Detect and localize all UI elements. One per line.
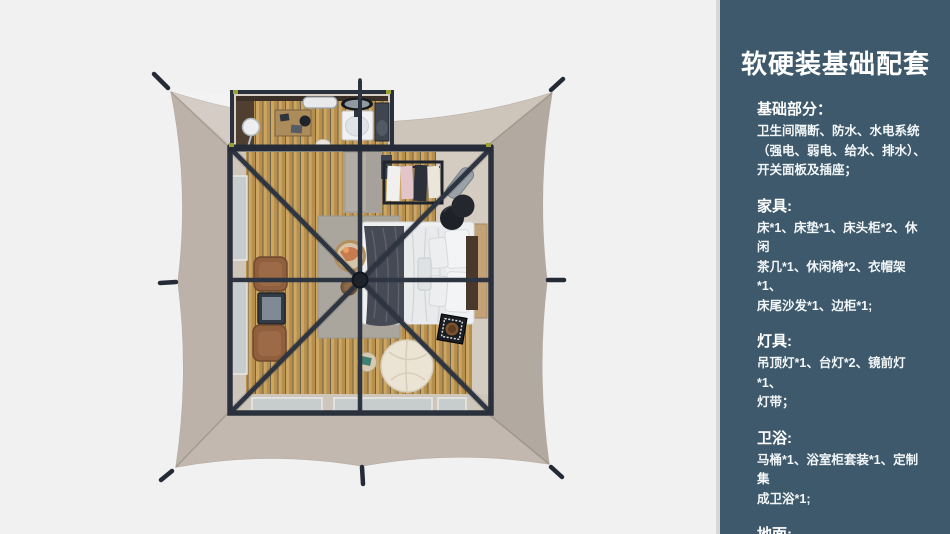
bed — [362, 222, 478, 326]
section-heading: 地面: — [757, 526, 936, 534]
tent-topview-render — [0, 0, 720, 534]
section-basics: 基础部分： 卫生间隔断、防水、水电系统 （强电、弱电、给水、排水）、 开关面板及… — [757, 101, 936, 181]
section-lighting: 灯具: 吊顶灯*1、台灯*2、镜前灯*1、 灯带； — [757, 333, 936, 413]
bathroom-sink — [342, 110, 373, 140]
tray-table — [437, 314, 467, 344]
section-body: 床*1、床垫*1、床头柜*2、休闲 茶几*1、休闲椅*2、衣帽架*1、 床尾沙发… — [757, 219, 929, 317]
section-body: 卫生间隔断、防水、水电系统 （强电、弱电、给水、排水）、 开关面板及插座； — [757, 122, 929, 181]
slide: 软硬装基础配套 基础部分： 卫生间隔断、防水、水电系统 （强电、弱电、给水、排水… — [0, 0, 950, 534]
stake-top-right — [551, 79, 563, 90]
light-panel — [303, 97, 337, 108]
window-left-lower — [232, 282, 247, 374]
vanity-desk — [275, 110, 311, 136]
section-body: 马桶*1、浴室柜套装*1、定制集 成卫浴*1; — [757, 451, 929, 510]
stake-top-left — [154, 74, 168, 88]
info-panel: 软硬装基础配套 基础部分： 卫生间隔断、防水、水电系统 （强电、弱电、给水、排水… — [720, 0, 950, 534]
lounge-chair-upper — [254, 257, 287, 291]
stake-bottom-right — [551, 467, 562, 477]
section-heading: 基础部分： — [757, 101, 936, 118]
lounge-chair-lower — [253, 325, 286, 361]
section-heading: 家具: — [757, 198, 936, 215]
panel-title: 软硬装基础配套 — [741, 49, 936, 79]
tea-table — [258, 293, 285, 324]
section-furniture: 家具: 床*1、床垫*1、床头柜*2、休闲 茶几*1、休闲椅*2、衣帽架*1、 … — [757, 198, 936, 317]
stake-left-mid — [160, 282, 176, 283]
tent-floorplan-svg — [0, 0, 720, 534]
section-bathroom: 卫浴: 马桶*1、浴室柜套装*1、定制集 成卫浴*1; — [757, 430, 936, 510]
window-left-upper — [232, 176, 247, 260]
section-heading: 灯具: — [757, 333, 936, 350]
stake-bottom-left — [161, 471, 172, 480]
window-bottom-left — [252, 398, 322, 411]
section-heading: 卫浴: — [757, 430, 936, 447]
stake-bottom-center — [362, 467, 363, 484]
bed-headboard — [466, 236, 478, 310]
section-flooring: 地面: 强化木地板、卫生间防滑防潮石 塑板； — [757, 526, 936, 534]
section-body: 吊顶灯*1、台灯*2、镜前灯*1、 灯带； — [757, 354, 929, 413]
vanity-mirror — [341, 98, 373, 111]
toilet — [375, 103, 389, 141]
frame-hub — [353, 273, 368, 288]
window-bottom-right — [438, 398, 466, 411]
window-bottom-center — [334, 398, 432, 411]
